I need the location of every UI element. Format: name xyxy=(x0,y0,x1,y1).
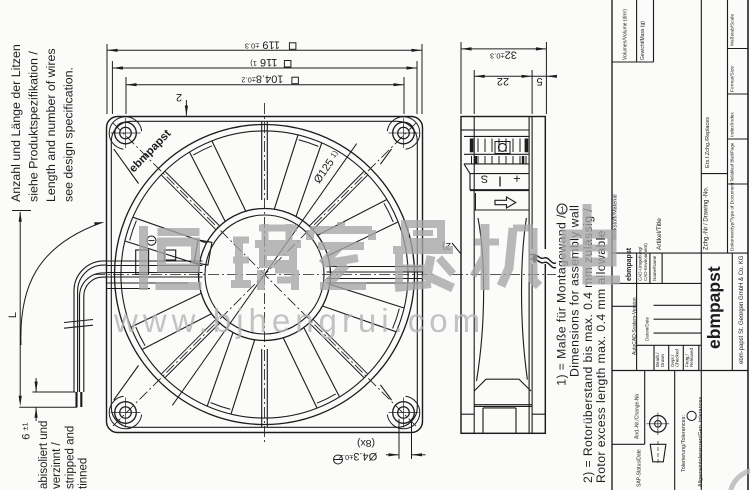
svg-text:Length and number of wires: Length and number of wires xyxy=(44,48,58,202)
svg-text:Checked: Checked xyxy=(675,349,680,367)
svg-text:verzinnt /: verzinnt / xyxy=(51,442,63,489)
svg-text:tinned: tinned xyxy=(78,458,90,489)
svg-text:stripped and: stripped and xyxy=(64,426,76,489)
svg-text:Index/Index: Index/Index xyxy=(730,112,736,137)
svg-text:CAD-Environment): CAD-Environment) xyxy=(643,243,648,281)
svg-text:Released: Released xyxy=(689,347,694,367)
svg-text:Datum/Date: Datum/Date xyxy=(645,316,650,341)
svg-text:abisoliert und: abisoliert und xyxy=(38,421,50,489)
svg-text:Maßstab/Scale: Maßstab/Scale xyxy=(730,14,736,46)
svg-text:www.bjhengrui.com: www.bjhengrui.com xyxy=(113,302,485,339)
svg-text:SAP-Status/Date: SAP-Status/Date xyxy=(636,449,642,487)
svg-text:Allgemeintoleranzen/Gen. toler: Allgemeintoleranzen/Gen. tolerances xyxy=(698,397,704,487)
svg-text:2: 2 xyxy=(176,91,182,103)
svg-text:Anzahl und Länge der Litzen: Anzahl und Länge der Litzen xyxy=(9,44,23,202)
svg-text:S: S xyxy=(481,173,488,185)
svg-text:L: L xyxy=(7,312,19,318)
svg-text:Gewicht/Mass (g): Gewicht/Mass (g) xyxy=(640,21,646,60)
svg-text:Volumen/Volume (dm³): Volumen/Volume (dm³) xyxy=(623,9,629,60)
svg-text:Dokumenttyp/Type of Document: Dokumenttyp/Type of Document xyxy=(730,182,736,251)
svg-text:Änd.-Nr./Change-No: Änd.-Nr./Change-No xyxy=(633,393,640,439)
svg-text:ebmpapst: ebmpapst xyxy=(626,247,633,281)
svg-text:CAD-Umgebung/: CAD-Umgebung/ xyxy=(638,246,643,281)
svg-text:22: 22 xyxy=(497,75,509,87)
svg-text:Zchg.-Nr / Drawing -No.: Zchg.-Nr / Drawing -No. xyxy=(704,186,710,250)
svg-text:Drawn: Drawn xyxy=(660,353,665,367)
svg-text:ebm-papst St. Georgen GmbH & C: ebm-papst St. Georgen GmbH & Co. KG xyxy=(739,255,745,364)
svg-text:Tolerierung/Tolerances:: Tolerierung/Tolerances: xyxy=(681,415,687,472)
svg-text:ebmpapst: ebmpapst xyxy=(704,266,724,349)
svg-text:1: 1 xyxy=(560,205,565,214)
svg-text:Artikel/Title: Artikel/Title xyxy=(656,218,663,250)
svg-text:AutoCAD-System-Version: AutoCAD-System-Version xyxy=(632,297,638,355)
svg-text:Format/Size: Format/Size xyxy=(730,66,736,92)
svg-text:Name/Name: Name/Name xyxy=(652,255,657,281)
svg-text:see design specification.: see design specification. xyxy=(62,67,76,202)
svg-text:5: 5 xyxy=(536,75,542,87)
svg-text:+: + xyxy=(513,172,521,187)
svg-text:Ers.f.Zchg./Replaces: Ers.f.Zchg./Replaces xyxy=(705,117,711,168)
svg-text:Rotor excess length max. 0.4 m: Rotor excess length max. 0.4 mm allowabl… xyxy=(594,230,608,483)
svg-text:(8x): (8x) xyxy=(357,437,375,449)
svg-text:Teilablauf Blatt/Page: Teilablauf Blatt/Page xyxy=(730,142,735,182)
svg-text:siehe Produktspezifikation /: siehe Produktspezifikation / xyxy=(27,51,41,202)
